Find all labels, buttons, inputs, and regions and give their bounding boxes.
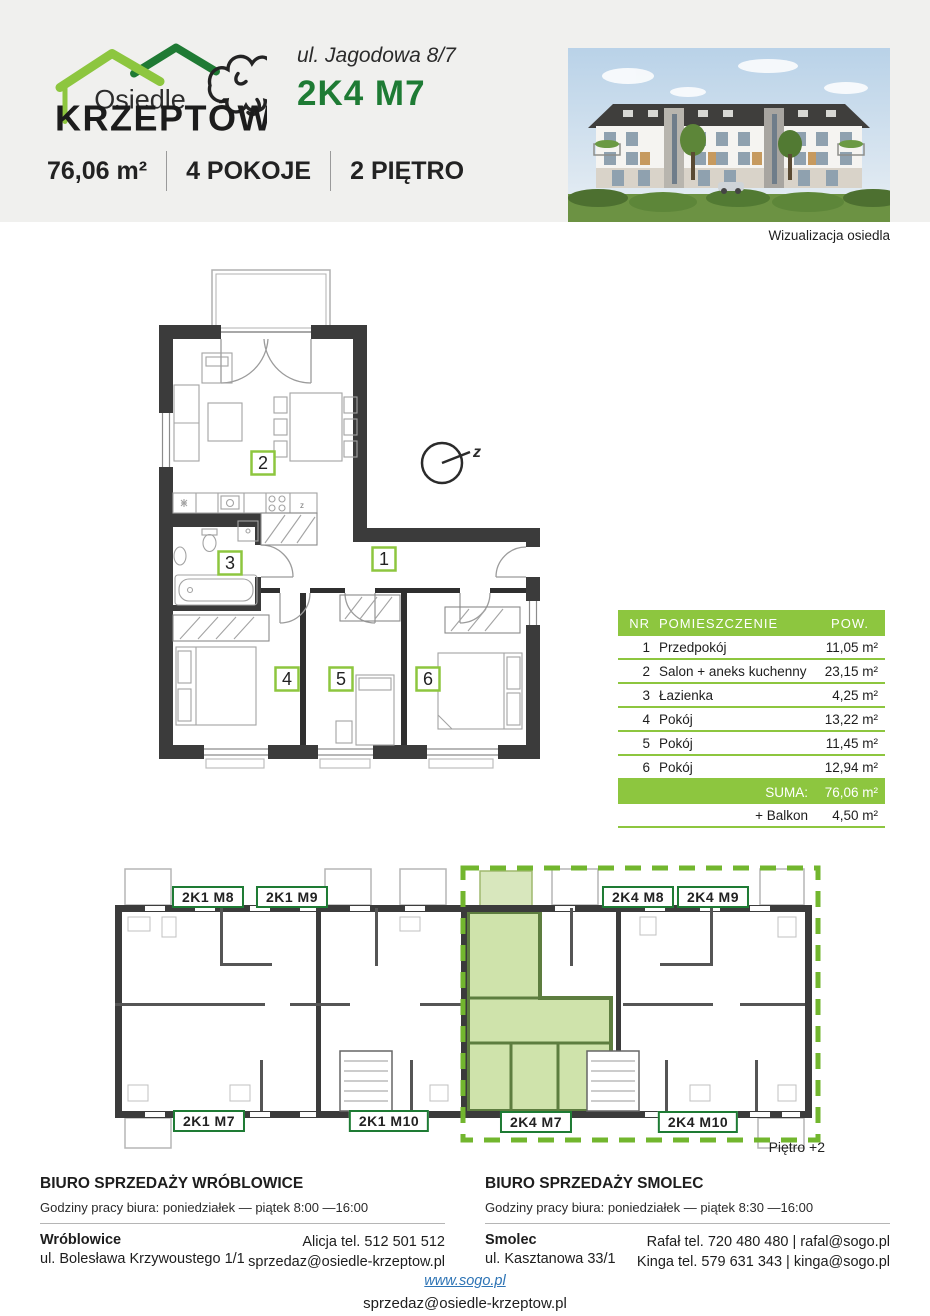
row-area: 13,22 m² bbox=[812, 712, 885, 727]
site-block: www.sogo.pl sprzedaz@osiedle-krzeptow.pl bbox=[0, 1272, 930, 1312]
office-contact: Alicja tel. 512 501 512 sprzedaz@osiedle… bbox=[248, 1232, 445, 1273]
room-tag-4: 4 bbox=[276, 668, 299, 691]
row-area: 11,05 m² bbox=[812, 640, 885, 655]
room-tag-6: 6 bbox=[417, 668, 440, 691]
balcony bbox=[212, 270, 330, 332]
unit-label-2k1-m7: 2K1 M7 bbox=[173, 1110, 245, 1132]
row-name: Przedpokój bbox=[650, 640, 812, 655]
table-row: 5 Pokój 11,45 m² bbox=[618, 732, 885, 756]
contact-line: sprzedaz@osiedle-krzeptow.pl bbox=[248, 1252, 445, 1272]
unit-label-2k4-m10: 2K4 M10 bbox=[658, 1111, 738, 1133]
stats-row: 76,06 m² 4 POKOJE 2 PIĘTRO bbox=[47, 148, 464, 194]
svg-text:1: 1 bbox=[379, 549, 389, 569]
row-nr: 2 bbox=[618, 664, 650, 679]
floor-note: Piętro +2 bbox=[769, 1139, 825, 1155]
office-divider bbox=[485, 1223, 890, 1224]
logo-line2: KRZEPTÓW bbox=[55, 97, 267, 137]
balkon-row: + Balkon 4,50 m² bbox=[618, 804, 885, 828]
office-city: Wróblowice bbox=[40, 1232, 245, 1248]
svg-text:z: z bbox=[472, 444, 481, 461]
table-row: 1 Przedpokój 11,05 m² bbox=[618, 636, 885, 660]
stat-rooms: 4 POKOJE bbox=[186, 157, 311, 186]
flyer-page: Osiedle KRZEPTÓW ul. Jagodowa 8/7 2K4 M7… bbox=[0, 0, 930, 1316]
row-name: Pokój bbox=[650, 712, 812, 727]
table-row: 4 Pokój 13,22 m² bbox=[618, 708, 885, 732]
row-name: Salon + aneks kuchenny bbox=[650, 664, 812, 679]
svg-text:5: 5 bbox=[336, 669, 346, 689]
row-name: Pokój bbox=[650, 736, 812, 751]
svg-text:4: 4 bbox=[282, 669, 292, 689]
room-tag-1: 1 bbox=[373, 548, 396, 571]
room-tag-2: 2 bbox=[252, 452, 275, 475]
office-title: BIURO SPRZEDAŻY WRÓBLOWICE bbox=[40, 1175, 445, 1193]
rooms-table: NR POMIESZCZENIE POW. 1 Przedpokój 11,05… bbox=[618, 610, 885, 828]
contact-line: Kinga tel. 579 631 343 | kinga@sogo.pl bbox=[637, 1252, 890, 1272]
doors bbox=[221, 339, 526, 623]
unit-label-2k1-m9: 2K1 M9 bbox=[256, 886, 328, 908]
col-name: POMIESZCZENIE bbox=[650, 616, 803, 631]
unit-label-2k4-m9: 2K4 M9 bbox=[677, 886, 749, 908]
office-address: Wróblowice ul. Bolesława Krzywoustego 1/… bbox=[40, 1232, 245, 1273]
row-nr: 4 bbox=[618, 712, 650, 727]
office-street: ul. Kasztanowa 33/1 bbox=[485, 1251, 616, 1267]
suma-label: SUMA: bbox=[618, 785, 812, 800]
table-row: 3 Łazienka 4,25 m² bbox=[618, 684, 885, 708]
office-wroblowice: BIURO SPRZEDAŻY WRÓBLOWICE Godziny pracy… bbox=[40, 1175, 445, 1273]
photo-caption: Wizualizacja osiedla bbox=[768, 228, 890, 243]
stat-floor: 2 PIĘTRO bbox=[350, 157, 464, 186]
unit-label-2k1-m10: 2K1 M10 bbox=[349, 1110, 429, 1132]
office-city: Smolec bbox=[485, 1232, 616, 1248]
office-address: Smolec ul. Kasztanowa 33/1 bbox=[485, 1232, 616, 1273]
suma-value: 76,06 m² bbox=[812, 785, 885, 800]
suma-row: SUMA: 76,06 m² bbox=[618, 780, 885, 804]
office-street: ul. Bolesława Krzywoustego 1/1 bbox=[40, 1251, 245, 1267]
unit-label-2k1-m8: 2K1 M8 bbox=[172, 886, 244, 908]
svg-text:6: 6 bbox=[423, 669, 433, 689]
office-divider bbox=[40, 1223, 445, 1224]
office-smolec: BIURO SPRZEDAŻY SMOLEC Godziny pracy biu… bbox=[485, 1175, 890, 1273]
row-nr: 5 bbox=[618, 736, 650, 751]
balkon-value: 4,50 m² bbox=[812, 808, 885, 823]
row-name: Pokój bbox=[650, 760, 812, 775]
svg-text:3: 3 bbox=[225, 553, 235, 573]
unit-code: 2K4 M7 bbox=[297, 74, 456, 114]
floor-overview: 2K1 M8 2K1 M9 2K4 M8 2K4 M9 2K1 M7 2K1 M… bbox=[100, 855, 930, 1165]
contact-email: sprzedaz@osiedle-krzeptow.pl bbox=[0, 1295, 930, 1312]
office-contact: Rafał tel. 720 480 480 | rafal@sogo.pl K… bbox=[637, 1232, 890, 1273]
row-area: 11,45 m² bbox=[812, 736, 885, 751]
apartment-floor-plan: z z 2 3 1 4 bbox=[140, 255, 560, 835]
office-hours: Godziny pracy biura: poniedziałek — piąt… bbox=[40, 1200, 445, 1215]
row-area: 4,25 m² bbox=[812, 688, 885, 703]
row-name: Łazienka bbox=[650, 688, 812, 703]
stat-divider bbox=[330, 151, 331, 191]
logo: Osiedle KRZEPTÓW bbox=[52, 28, 267, 136]
kitchen-mark: z bbox=[300, 501, 304, 510]
office-title: BIURO SPRZEDAŻY SMOLEC bbox=[485, 1175, 890, 1193]
unit-label-2k4-m8: 2K4 M8 bbox=[602, 886, 674, 908]
unit-label-2k4-m7: 2K4 M7 bbox=[500, 1111, 572, 1133]
row-area: 12,94 m² bbox=[812, 760, 885, 775]
stat-area: 76,06 m² bbox=[47, 157, 147, 186]
contact-line: Alicja tel. 512 501 512 bbox=[248, 1232, 445, 1252]
compass-icon: z bbox=[422, 443, 481, 483]
building bbox=[588, 104, 870, 188]
row-nr: 3 bbox=[618, 688, 650, 703]
svg-text:2: 2 bbox=[258, 453, 268, 473]
row-nr: 1 bbox=[618, 640, 650, 655]
table-row: 6 Pokój 12,94 m² bbox=[618, 756, 885, 780]
room-tag-3: 3 bbox=[219, 552, 242, 575]
table-row: 2 Salon + aneks kuchenny 23,15 m² bbox=[618, 660, 885, 684]
balkon-label: + Balkon bbox=[618, 808, 812, 823]
room-tag-5: 5 bbox=[330, 668, 353, 691]
street-address: ul. Jagodowa 8/7 bbox=[297, 44, 456, 68]
address-block: ul. Jagodowa 8/7 2K4 M7 bbox=[297, 44, 456, 114]
col-nr: NR bbox=[618, 616, 650, 631]
building-photo bbox=[568, 48, 890, 222]
office-hours: Godziny pracy biura: poniedziałek — piąt… bbox=[485, 1200, 890, 1215]
stat-divider bbox=[166, 151, 167, 191]
row-nr: 6 bbox=[618, 760, 650, 775]
row-area: 23,15 m² bbox=[812, 664, 885, 679]
overview-partitions bbox=[115, 908, 805, 1111]
website-link[interactable]: www.sogo.pl bbox=[424, 1273, 505, 1289]
col-area: POW. bbox=[803, 616, 885, 631]
contact-line: Rafał tel. 720 480 480 | rafal@sogo.pl bbox=[637, 1232, 890, 1252]
table-header-row: NR POMIESZCZENIE POW. bbox=[618, 610, 885, 636]
